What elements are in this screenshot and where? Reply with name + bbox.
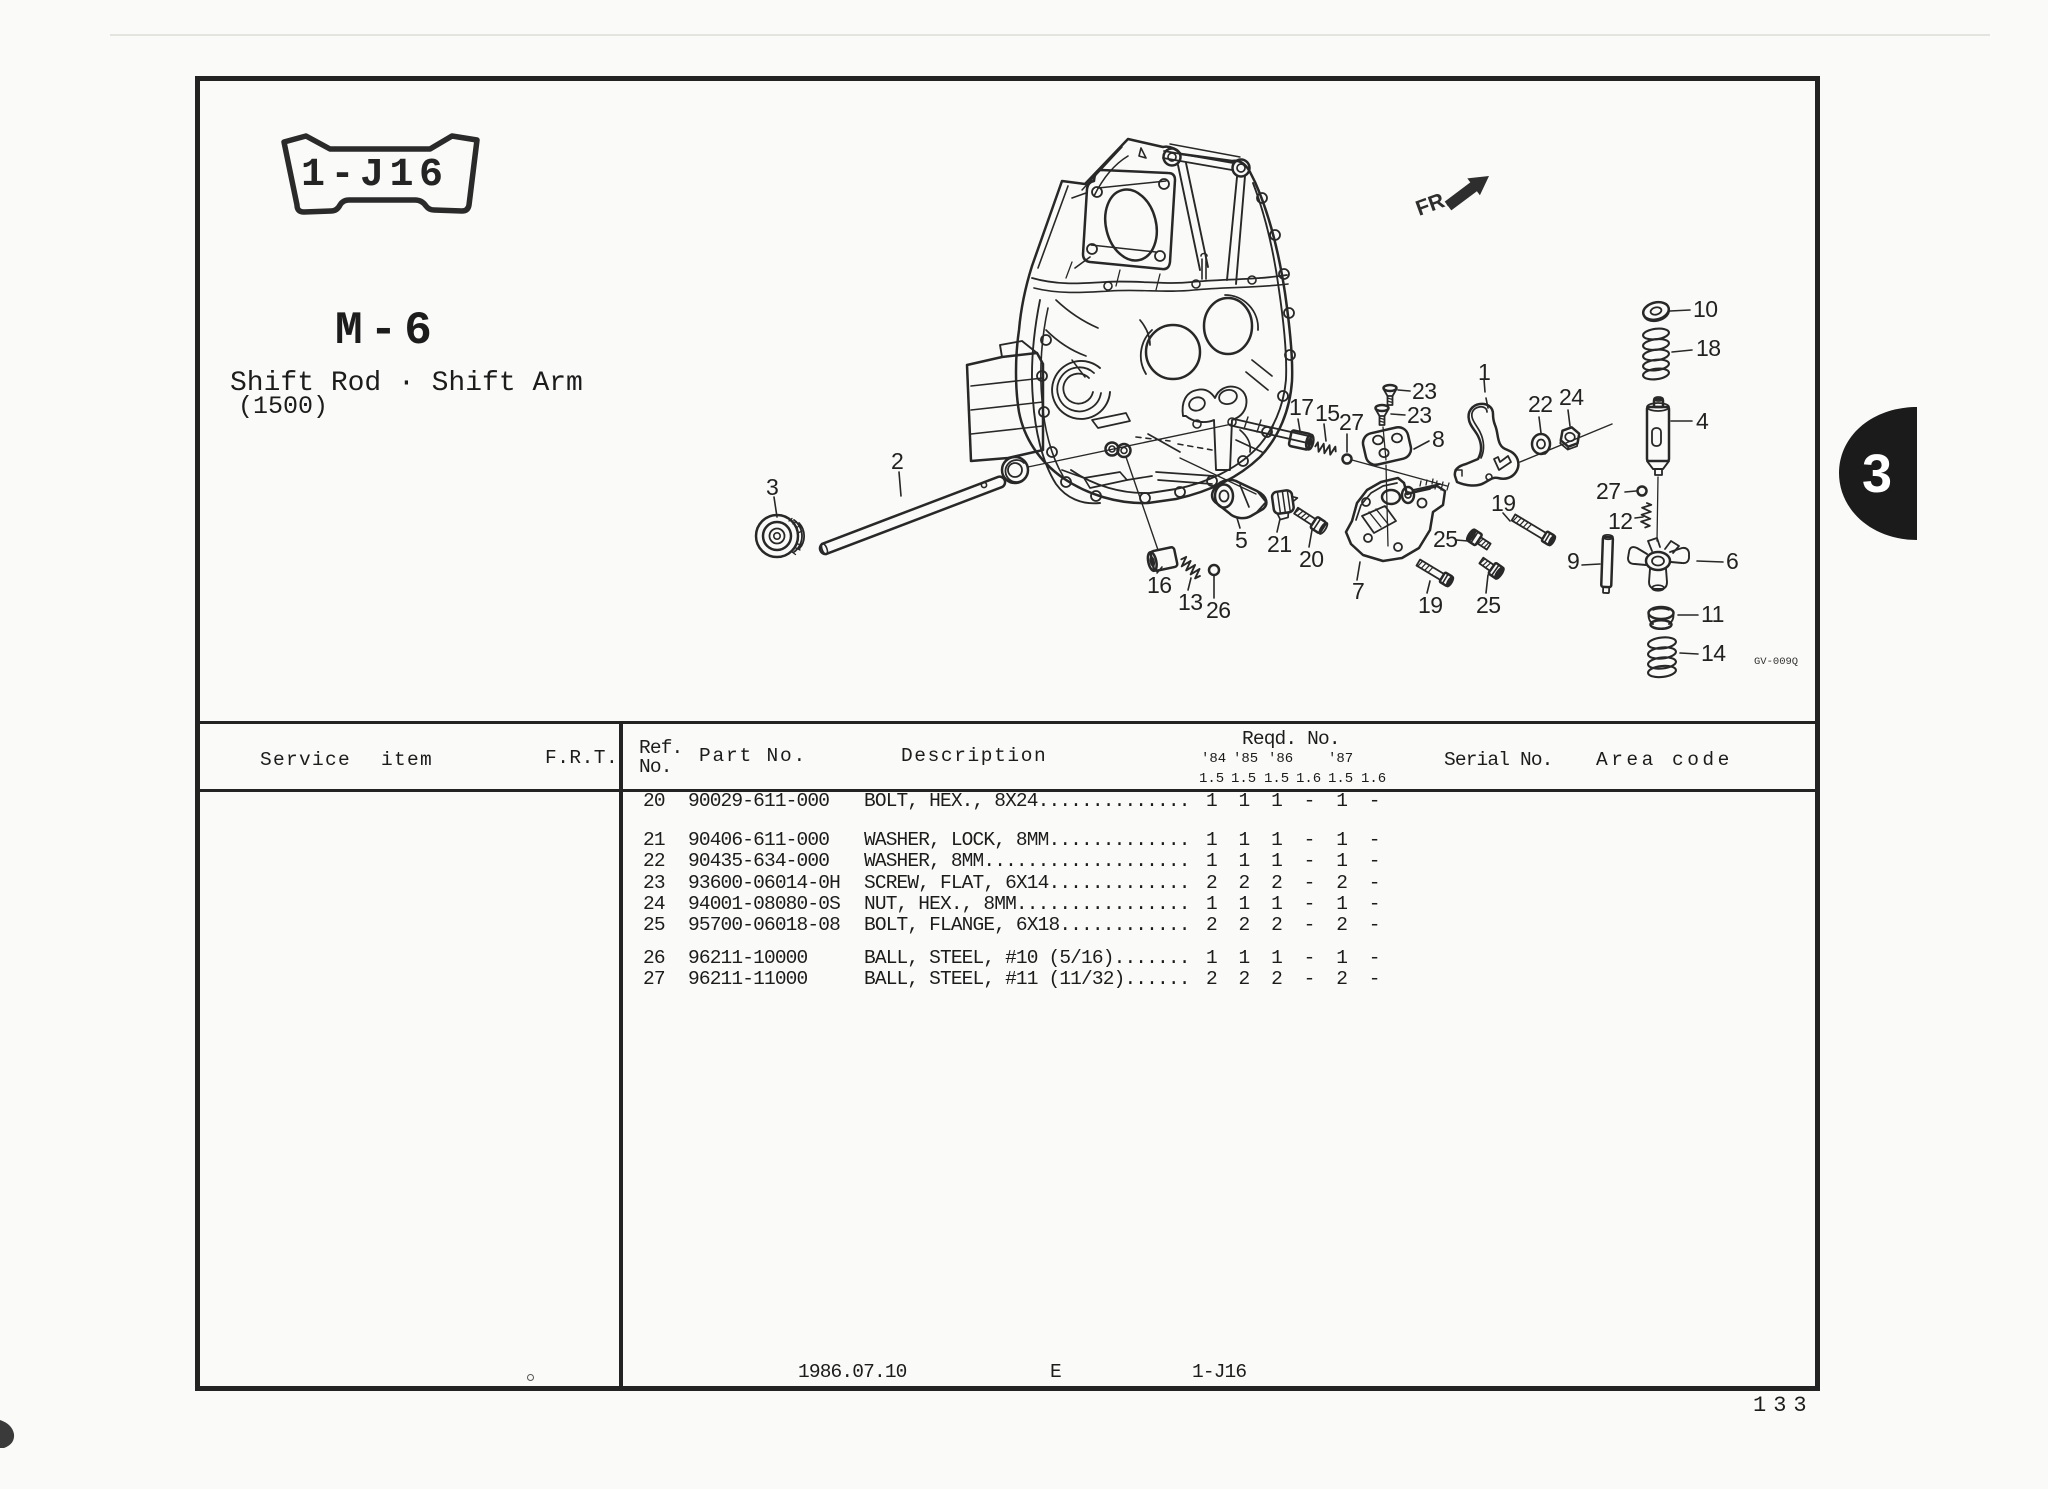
svg-text:10: 10 <box>1693 296 1718 322</box>
svg-text:18: 18 <box>1696 335 1721 361</box>
svg-text:26: 26 <box>1206 597 1231 623</box>
svg-text:12: 12 <box>1608 508 1633 534</box>
svg-text:13: 13 <box>1178 589 1203 615</box>
svg-text:9: 9 <box>1567 548 1579 574</box>
svg-text:7: 7 <box>1352 578 1364 604</box>
svg-text:6: 6 <box>1726 548 1738 574</box>
svg-text:19: 19 <box>1418 592 1443 618</box>
svg-text:14: 14 <box>1701 640 1726 666</box>
svg-text:20: 20 <box>1299 546 1324 572</box>
svg-text:3: 3 <box>766 474 778 500</box>
svg-text:23: 23 <box>1412 378 1437 404</box>
svg-text:19: 19 <box>1491 490 1516 516</box>
svg-text:3: 3 <box>1862 444 1892 504</box>
svg-text:GV-009Q: GV-009Q <box>1754 656 1798 668</box>
svg-text:1-J16: 1-J16 <box>301 153 449 198</box>
svg-text:5: 5 <box>1235 527 1247 553</box>
svg-text:27: 27 <box>1596 478 1621 504</box>
svg-text:23: 23 <box>1407 402 1432 428</box>
svg-text:16: 16 <box>1147 572 1172 598</box>
svg-text:25: 25 <box>1476 592 1501 618</box>
svg-text:4: 4 <box>1696 408 1709 434</box>
svg-text:22: 22 <box>1528 391 1553 417</box>
svg-text:11: 11 <box>1701 601 1724 627</box>
svg-text:8: 8 <box>1432 426 1444 452</box>
svg-text:24: 24 <box>1559 384 1584 410</box>
svg-text:2: 2 <box>891 448 903 474</box>
svg-text:25: 25 <box>1433 526 1458 552</box>
svg-text:15: 15 <box>1315 400 1340 426</box>
svg-text:27: 27 <box>1339 409 1364 435</box>
svg-text:17: 17 <box>1289 394 1314 420</box>
svg-text:21: 21 <box>1267 531 1292 557</box>
